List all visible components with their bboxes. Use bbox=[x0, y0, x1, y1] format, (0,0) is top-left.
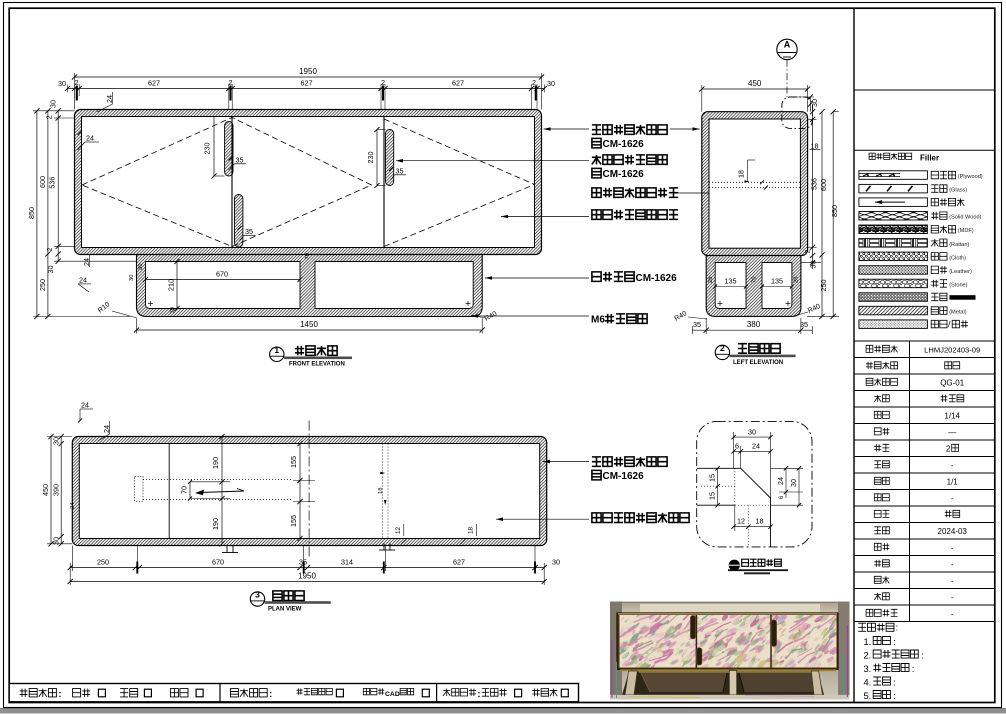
svg-text:30: 30 bbox=[547, 79, 555, 88]
svg-text:28: 28 bbox=[794, 277, 800, 283]
svg-text:CM-1626: CM-1626 bbox=[603, 139, 645, 150]
svg-text:2: 2 bbox=[45, 115, 54, 119]
svg-text:30: 30 bbox=[789, 479, 798, 487]
svg-text:70: 70 bbox=[305, 253, 311, 259]
svg-text:190: 190 bbox=[211, 518, 220, 530]
svg-text:12: 12 bbox=[395, 526, 402, 534]
svg-text:35: 35 bbox=[245, 227, 253, 236]
svg-text:30: 30 bbox=[49, 100, 58, 108]
svg-text:CM-1626: CM-1626 bbox=[636, 273, 678, 284]
svg-text:15: 15 bbox=[708, 492, 717, 500]
svg-text:1: 1 bbox=[274, 345, 279, 355]
svg-text:CM-1626: CM-1626 bbox=[603, 169, 645, 180]
svg-text:3: 3 bbox=[255, 590, 260, 600]
svg-text:70: 70 bbox=[752, 277, 758, 283]
svg-text:390: 390 bbox=[51, 484, 60, 496]
svg-text:PLAN VIEW: PLAN VIEW bbox=[268, 607, 302, 613]
svg-text:24: 24 bbox=[86, 134, 94, 143]
svg-text:6: 6 bbox=[735, 442, 739, 451]
svg-text:LHMJ202403-09: LHMJ202403-09 bbox=[924, 345, 980, 354]
svg-text:2: 2 bbox=[45, 248, 54, 252]
svg-text:30: 30 bbox=[46, 266, 55, 274]
svg-text::: : bbox=[912, 664, 915, 674]
svg-text:536: 536 bbox=[810, 178, 819, 190]
svg-text:(Cloth): (Cloth) bbox=[949, 255, 966, 261]
svg-text:-: - bbox=[951, 576, 954, 585]
svg-text:155: 155 bbox=[289, 515, 298, 527]
svg-text:CM-1626: CM-1626 bbox=[603, 471, 645, 482]
svg-text:-: - bbox=[951, 560, 954, 569]
svg-text:230: 230 bbox=[203, 143, 212, 155]
svg-text:230: 230 bbox=[366, 152, 375, 164]
svg-text:250: 250 bbox=[38, 279, 47, 291]
svg-text:1950: 1950 bbox=[299, 67, 317, 76]
svg-text:70: 70 bbox=[180, 486, 189, 494]
svg-text:1/1: 1/1 bbox=[947, 477, 959, 486]
svg-text:1950: 1950 bbox=[298, 572, 316, 581]
svg-text:35: 35 bbox=[396, 167, 404, 176]
svg-text:(Rattan): (Rattan) bbox=[949, 242, 969, 248]
svg-text:600: 600 bbox=[38, 176, 47, 188]
svg-text:24: 24 bbox=[752, 442, 760, 451]
svg-text:CAD: CAD bbox=[385, 691, 400, 698]
svg-text:(Glass): (Glass) bbox=[949, 188, 967, 194]
svg-text:450: 450 bbox=[41, 484, 50, 496]
svg-text:30: 30 bbox=[51, 437, 60, 445]
svg-text:314: 314 bbox=[341, 557, 353, 566]
svg-text::: : bbox=[893, 678, 896, 688]
svg-text:30: 30 bbox=[51, 537, 60, 545]
svg-text:2024-03: 2024-03 bbox=[938, 527, 968, 536]
svg-text:4.: 4. bbox=[864, 678, 872, 688]
svg-text::: : bbox=[269, 689, 272, 699]
svg-text:135: 135 bbox=[771, 277, 783, 286]
svg-text:30: 30 bbox=[748, 427, 756, 436]
svg-text:627: 627 bbox=[452, 79, 464, 88]
svg-text:380: 380 bbox=[747, 320, 761, 329]
svg-text:(Leather): (Leather) bbox=[949, 269, 972, 275]
svg-text:(Metal): (Metal) bbox=[949, 310, 967, 316]
svg-text:-: - bbox=[951, 461, 954, 470]
svg-text::: : bbox=[478, 689, 481, 699]
svg-text:18: 18 bbox=[811, 141, 819, 150]
svg-text:30: 30 bbox=[552, 557, 560, 566]
svg-text:18: 18 bbox=[756, 517, 764, 526]
svg-text:30: 30 bbox=[138, 264, 144, 270]
svg-text:670: 670 bbox=[216, 270, 228, 279]
svg-text:24: 24 bbox=[776, 477, 785, 485]
svg-text:35: 35 bbox=[236, 156, 244, 165]
svg-text:(Solid Wood): (Solid Wood) bbox=[949, 215, 981, 221]
svg-text:-: - bbox=[951, 543, 954, 552]
svg-text:24: 24 bbox=[81, 401, 89, 410]
svg-text:155: 155 bbox=[289, 456, 298, 468]
svg-text:18: 18 bbox=[378, 488, 384, 494]
svg-text:35: 35 bbox=[800, 320, 808, 329]
svg-text:(MDF): (MDF) bbox=[958, 228, 974, 234]
svg-text:627: 627 bbox=[301, 79, 313, 88]
svg-text::: : bbox=[893, 637, 896, 647]
svg-text:30: 30 bbox=[170, 307, 176, 313]
svg-text:6: 6 bbox=[778, 495, 785, 499]
svg-text:QG-01: QG-01 bbox=[940, 378, 965, 387]
svg-text:250: 250 bbox=[97, 557, 109, 566]
svg-text:24: 24 bbox=[79, 276, 87, 285]
svg-text:850: 850 bbox=[27, 207, 36, 219]
svg-text:135: 135 bbox=[725, 277, 737, 286]
svg-text:2: 2 bbox=[720, 343, 725, 353]
svg-text:1/14: 1/14 bbox=[944, 411, 960, 420]
svg-text:28: 28 bbox=[708, 277, 714, 283]
svg-text:35: 35 bbox=[693, 320, 701, 329]
svg-text::: : bbox=[921, 651, 924, 661]
svg-text:30: 30 bbox=[808, 261, 817, 269]
svg-text:12: 12 bbox=[737, 517, 745, 526]
svg-text:250: 250 bbox=[819, 280, 828, 292]
svg-text:30: 30 bbox=[129, 275, 135, 281]
svg-text:627: 627 bbox=[453, 557, 465, 566]
svg-text:-: - bbox=[951, 494, 954, 503]
svg-text:30: 30 bbox=[810, 99, 819, 107]
svg-text:15: 15 bbox=[708, 474, 717, 482]
svg-text:2.: 2. bbox=[864, 651, 872, 661]
svg-text:Filler: Filler bbox=[920, 154, 939, 163]
svg-text:450: 450 bbox=[748, 79, 762, 88]
svg-text:M6: M6 bbox=[591, 315, 605, 326]
svg-text:600: 600 bbox=[819, 179, 828, 191]
svg-text:LEFT ELEVATION: LEFT ELEVATION bbox=[733, 360, 783, 366]
svg-text:1.: 1. bbox=[864, 637, 872, 647]
svg-text:30: 30 bbox=[58, 79, 66, 88]
svg-text:18: 18 bbox=[737, 170, 746, 178]
svg-text:-: - bbox=[951, 609, 954, 618]
svg-text:FRONT ELEVATION: FRONT ELEVATION bbox=[289, 362, 345, 368]
svg-text::: : bbox=[896, 623, 899, 633]
svg-text::: : bbox=[59, 689, 62, 699]
svg-text:(Stone): (Stone) bbox=[949, 282, 967, 288]
svg-text:3.: 3. bbox=[864, 664, 872, 674]
svg-text:190: 190 bbox=[211, 457, 220, 469]
svg-text:(Plywood): (Plywood) bbox=[958, 174, 983, 180]
svg-text:627: 627 bbox=[148, 79, 160, 88]
svg-text:210: 210 bbox=[167, 279, 176, 291]
svg-text:-: - bbox=[951, 593, 954, 602]
svg-text::: : bbox=[893, 691, 896, 701]
svg-text:5.: 5. bbox=[864, 691, 872, 701]
svg-text:2: 2 bbox=[946, 444, 951, 453]
svg-text:24: 24 bbox=[70, 502, 76, 509]
svg-text:850: 850 bbox=[830, 205, 839, 217]
svg-text:18: 18 bbox=[468, 526, 475, 534]
svg-text:1450: 1450 bbox=[300, 320, 318, 329]
svg-text:—: — bbox=[948, 428, 956, 437]
svg-text:536: 536 bbox=[48, 177, 57, 189]
svg-text:670: 670 bbox=[212, 557, 224, 566]
svg-text:A: A bbox=[784, 40, 791, 50]
